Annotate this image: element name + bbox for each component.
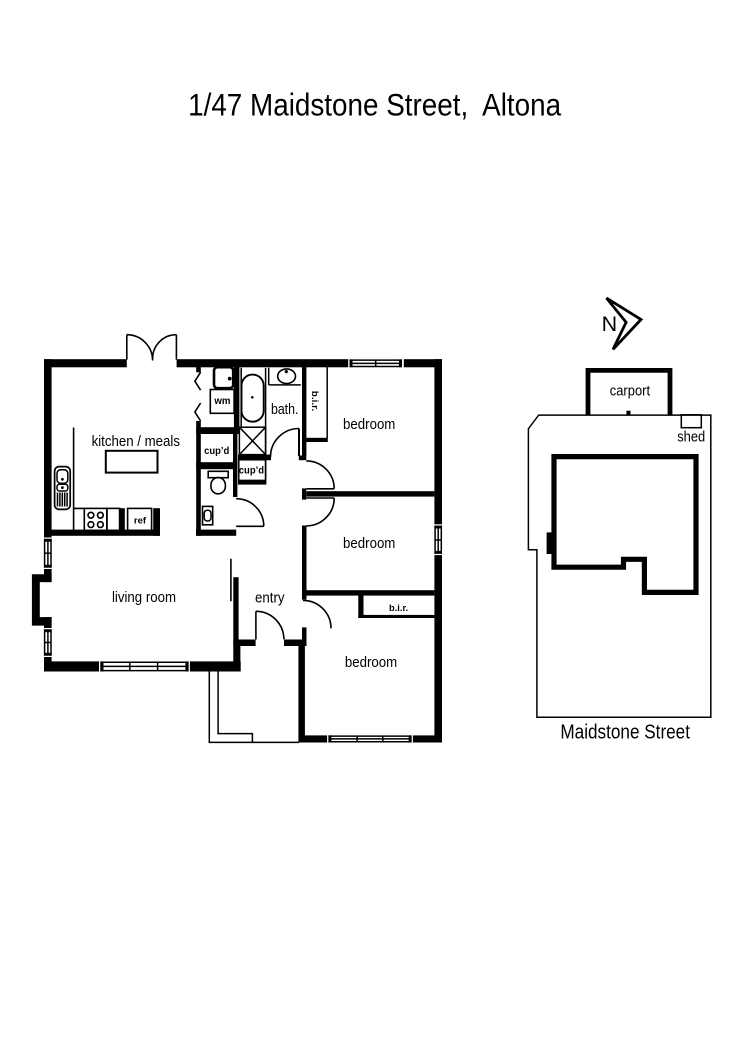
- svg-text:ref: ref: [134, 516, 147, 527]
- svg-text:entry: entry: [255, 589, 285, 606]
- svg-text:bedroom: bedroom: [343, 535, 395, 552]
- svg-text:cup’d: cup’d: [239, 465, 264, 477]
- svg-text:carport: carport: [610, 382, 651, 399]
- svg-text:bedroom: bedroom: [343, 416, 395, 433]
- svg-text:1/47 Maidstone Street, Altona: 1/47 Maidstone Street, Altona: [188, 88, 562, 123]
- svg-text:N: N: [602, 312, 618, 336]
- svg-text:living room: living room: [112, 589, 176, 606]
- svg-text:bedroom: bedroom: [345, 654, 397, 671]
- svg-text:kitchen / meals: kitchen / meals: [92, 433, 180, 450]
- svg-text:Maidstone Street: Maidstone Street: [560, 722, 690, 744]
- svg-text:b.i.r.: b.i.r.: [310, 391, 320, 412]
- svg-text:shed: shed: [677, 428, 705, 445]
- svg-text:wm: wm: [213, 396, 230, 407]
- svg-text:bath.: bath.: [271, 401, 299, 418]
- svg-text:cup’d: cup’d: [204, 445, 229, 457]
- svg-text:b.i.r.: b.i.r.: [389, 603, 408, 613]
